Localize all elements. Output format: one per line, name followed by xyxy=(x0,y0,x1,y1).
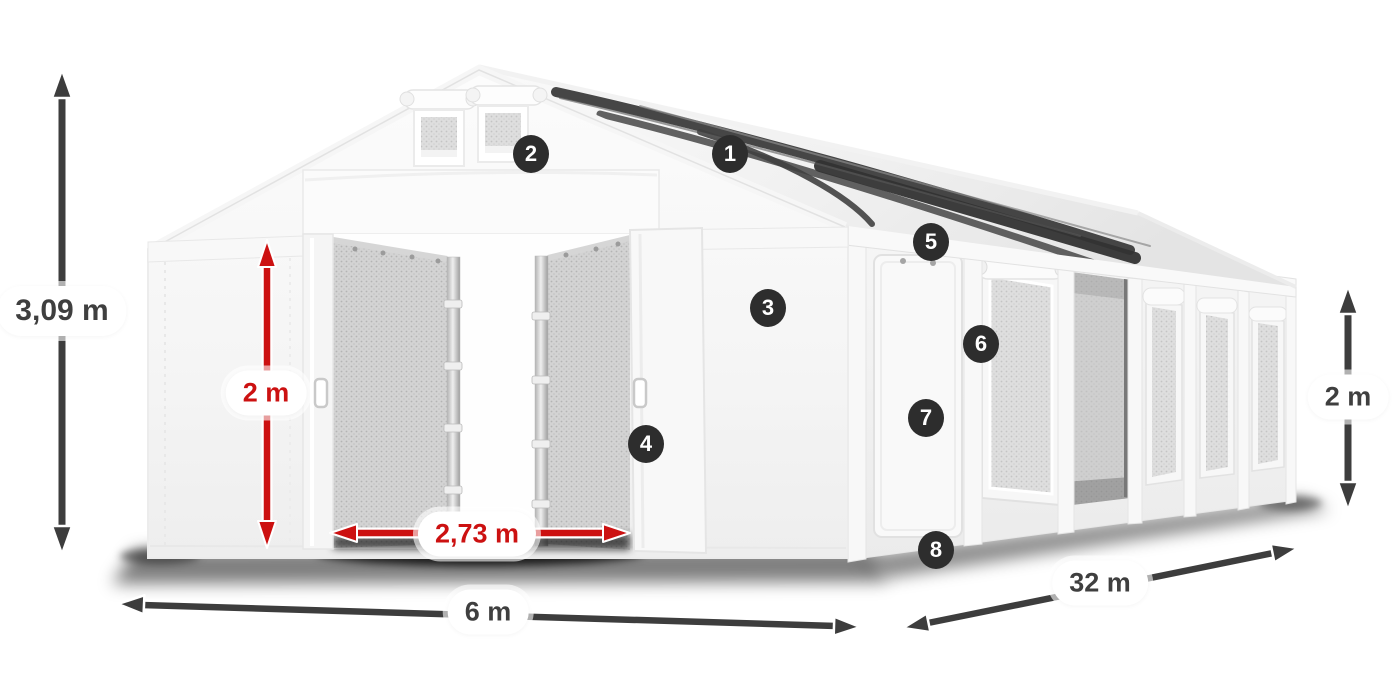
entrance-door-right xyxy=(630,228,706,553)
side-window-3 xyxy=(1197,298,1237,478)
entrance-door-left xyxy=(303,234,333,549)
callout-2-gable-windows[interactable]: 2 xyxy=(513,135,549,173)
tent-dimension-diagram: 3,09 m 2 m 2,73 m 6 m 32 m 2 m 1 2 3 4 5… xyxy=(0,0,1400,700)
callout-7-side-door[interactable]: 7 xyxy=(908,399,944,437)
dimension-label-door-height: 2 m xyxy=(226,371,307,416)
dimension-label-side-length: 32 m xyxy=(1052,561,1148,606)
callout-4-entrance-door[interactable]: 4 xyxy=(628,425,664,463)
callout-1-roof-reinforcement[interactable]: 1 xyxy=(712,135,748,173)
dimension-label-total-height: 3,09 m xyxy=(0,286,127,336)
callout-3-front-wall[interactable]: 3 xyxy=(750,289,786,327)
dimension-label-wall-height: 2 m xyxy=(1308,375,1389,420)
side-window-2 xyxy=(1143,288,1185,485)
side-window-1 xyxy=(971,255,1071,505)
dimension-label-door-width: 2,73 m xyxy=(418,512,536,557)
tent-illustration xyxy=(0,0,1400,700)
callout-6-side-window[interactable]: 6 xyxy=(963,325,999,363)
callout-8-base[interactable]: 8 xyxy=(918,531,954,569)
dimension-label-front-width: 6 m xyxy=(448,590,529,635)
side-door xyxy=(874,255,962,537)
entrance-portal xyxy=(303,170,706,553)
side-window-4 xyxy=(1249,307,1287,471)
callout-5-eave[interactable]: 5 xyxy=(913,223,949,261)
